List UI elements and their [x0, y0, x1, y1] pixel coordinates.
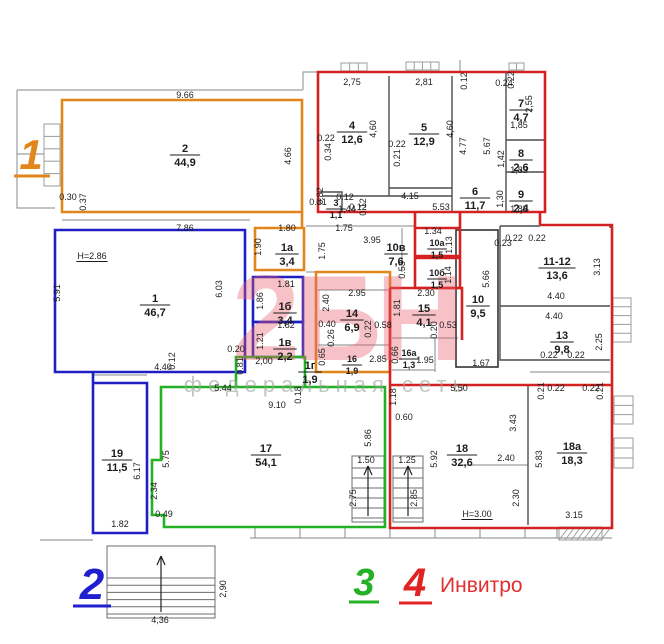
room-number: 8	[518, 148, 524, 160]
room-area: 18,3	[561, 455, 582, 467]
dimension-label: 6.17	[132, 462, 142, 480]
dimension-label: 5.67	[482, 137, 492, 155]
dimension-label: 1.75	[317, 242, 327, 260]
wall	[303, 72, 318, 90]
dimension-label: 1.80	[278, 223, 296, 233]
dimension-label: 2.30	[511, 489, 521, 507]
legend-company-name: Инвитро	[440, 574, 523, 597]
dimension-label: 0.21	[536, 382, 546, 400]
dimension-label: 1,42	[496, 150, 506, 168]
dimension-label: 0.65	[317, 348, 327, 366]
dimension-label: 1,85	[510, 120, 528, 130]
dimension-label: 4,60	[445, 120, 455, 138]
dimension-label: 4.40	[545, 311, 563, 321]
dimension-label: H=3.00	[462, 509, 491, 519]
room-number: 11-12	[543, 256, 571, 268]
dimension-label: 0.12	[167, 352, 177, 370]
dimension-label: 0.60	[395, 412, 413, 422]
room-number: 14	[346, 308, 359, 320]
dimension-label: 2.85	[369, 354, 387, 364]
legend-number-1: 1	[19, 131, 42, 178]
legend-number-2: 2	[79, 560, 105, 609]
dimension-label: 1.25	[398, 455, 416, 465]
legend-number-3: 3	[353, 562, 374, 604]
dimension-label: 0.21	[392, 149, 402, 167]
dimension-label: 1.95	[416, 355, 434, 365]
dimension-label: 4.66	[283, 147, 293, 165]
dimension-label: 1.86	[255, 292, 265, 310]
dimension-label: 0.22	[505, 233, 523, 243]
window-icon	[614, 438, 633, 468]
room-number: 1б	[279, 301, 292, 313]
dimension-label: 1.18	[388, 388, 398, 406]
dimension-label: 0.82	[315, 187, 325, 205]
room-area: 12,6	[341, 134, 362, 146]
dimension-label: 2.40	[497, 453, 515, 463]
dimension-label: 4.77	[458, 137, 468, 155]
room-number: 18	[456, 443, 468, 455]
dimension-label: 1.67	[472, 358, 490, 368]
room-area: 1,9	[346, 366, 359, 376]
dimension-label: 0.22	[506, 71, 516, 89]
dimension-label: 2.40	[321, 294, 331, 312]
dimension-label: 3.15	[565, 510, 583, 520]
dimension-label: 2,81	[415, 77, 433, 87]
dimension-label: 1.82	[277, 320, 295, 330]
room-number: 1	[152, 293, 158, 305]
room-number: 5	[421, 122, 427, 134]
unit-1-boundary	[62, 100, 302, 212]
room-number: 10	[472, 294, 484, 306]
dimension-label: 0.20	[429, 321, 439, 339]
dimension-label: 2.34	[149, 482, 159, 500]
dimension-label: H=2.86	[77, 251, 106, 261]
dimension-label: 0.53	[439, 320, 457, 330]
floor-plan: 2БНфедеральная сеть244,9146,71911,51754,…	[0, 0, 664, 644]
dimension-label: 1.82	[111, 519, 129, 529]
dimension-label: 0.40	[318, 319, 336, 329]
dimension-label: 0.12	[459, 72, 469, 90]
dimension-label: 5.66	[481, 270, 491, 288]
dimension-label: 2.95	[348, 288, 366, 298]
window-icon	[341, 63, 367, 71]
dimension-label: 2.30	[417, 288, 435, 298]
dimension-label: 2.25	[594, 333, 604, 351]
dimension-label: 1.81	[277, 279, 295, 289]
dimension-label: 0.22	[363, 320, 373, 338]
room-number: 2	[182, 143, 188, 155]
dimension-label: 2,55	[524, 95, 534, 113]
room-number: 6	[472, 186, 478, 198]
dimension-label: 1,85	[510, 204, 528, 214]
room-number: 16	[347, 354, 357, 364]
dimension-label: 0.34	[323, 143, 333, 161]
dimension-label: 4.40	[547, 291, 565, 301]
room-area: 46,7	[144, 307, 165, 319]
room-area: 12,9	[413, 136, 434, 148]
dimension-label: 0.66	[390, 346, 400, 364]
dimension-label: 3.95	[363, 235, 381, 245]
dimension-label: 2,75	[343, 77, 361, 87]
dimension-label: 1.90	[253, 238, 263, 256]
room-area: 6,9	[344, 322, 359, 334]
room-area: 13,6	[546, 270, 567, 282]
dimension-label: 5.91	[52, 284, 62, 302]
window-icon	[613, 298, 631, 342]
dimension-label: 0.22	[388, 139, 406, 149]
dimension-label: 0.26	[326, 329, 336, 347]
dimension-label: 1.14	[443, 266, 453, 284]
dimension-label: 7.86	[176, 223, 194, 233]
dimension-label: 0.30	[59, 192, 77, 202]
dimension-label: 1.75	[335, 223, 353, 233]
dimension-label: 0.18	[293, 386, 303, 404]
wall	[255, 528, 557, 538]
dimension-label: 4,60	[368, 120, 378, 138]
room-number: 19	[111, 448, 123, 460]
dimension-label: 2.85	[409, 489, 419, 507]
dimension-label: 0.58	[374, 320, 392, 330]
dimension-label: 1.21	[255, 332, 265, 350]
dimension-label: 1,30	[495, 190, 505, 208]
dimension-label: 0.21	[595, 382, 605, 400]
room-number: 18а	[563, 441, 582, 453]
dimension-label: 5.53	[432, 202, 450, 212]
dimension-label: 9.66	[176, 90, 194, 100]
dimension-label: 6.03	[214, 280, 224, 298]
dimension-label: 5.83	[534, 450, 544, 468]
dimension-label: 5.92	[429, 450, 439, 468]
room-number: 1в	[279, 337, 292, 349]
room-number: 9	[518, 189, 524, 201]
dimension-label: 0.22	[567, 350, 585, 360]
room-number: 4	[349, 120, 356, 132]
room-area: 32,6	[451, 457, 472, 469]
dimension-label: 2,00	[255, 356, 273, 366]
dimension-label: 5.44	[214, 383, 232, 393]
dimension-label: 0.81	[235, 357, 245, 375]
room-number: 15	[418, 303, 430, 315]
dimension-label: 0.20	[227, 344, 245, 354]
dimension-label: 0.22	[528, 233, 546, 243]
dimension-label: 1.34	[424, 226, 442, 236]
room-number: 10в	[387, 242, 406, 254]
room-number: 17	[260, 443, 272, 455]
dimension-label: 1.50	[357, 455, 375, 465]
room-area: 2,2	[277, 351, 292, 363]
dimension-label: 1,83	[510, 165, 528, 175]
room-number: 1г	[305, 360, 316, 372]
dimension-label: 0.49	[155, 509, 173, 519]
dimension-label: 9.10	[268, 400, 286, 410]
dimension-label: 0.12	[336, 192, 354, 202]
room-number: 16а	[401, 348, 417, 358]
dimension-label: 0.12	[358, 198, 368, 216]
room-area: 11,7	[465, 200, 486, 212]
dimension-label: 0.22	[547, 383, 565, 393]
dimension-label: 4,36	[151, 615, 169, 625]
dimension-label: 0.22	[317, 133, 335, 143]
room-area: 9,5	[470, 308, 485, 320]
dimension-label: 2.75	[348, 489, 358, 507]
room-area: 54,1	[255, 457, 276, 469]
window-icon	[614, 396, 633, 424]
room-area: 1,9	[302, 374, 317, 386]
dimension-label: 3.13	[592, 258, 602, 276]
dimension-label: 5.86	[363, 429, 373, 447]
dimension-label: 0.22	[540, 350, 558, 360]
legend-number-4: 4	[403, 561, 426, 605]
dimension-label: 5.75	[161, 450, 171, 468]
room-area: 3,4	[279, 256, 295, 268]
dimension-label: 5.50	[450, 383, 468, 393]
dimension-label: 0.53	[397, 261, 407, 279]
dimension-label: 4.15	[401, 191, 419, 201]
room-area: 11,5	[107, 462, 128, 474]
dimension-label: 1.13	[444, 236, 454, 254]
dimension-label: 2,90	[218, 580, 228, 598]
room-number: 13	[556, 330, 568, 342]
dimension-label: 3.43	[508, 414, 518, 432]
floor-plan-page: 2БНфедеральная сеть244,9146,71911,51754,…	[0, 0, 664, 644]
dimension-label: 0.37	[78, 193, 88, 211]
room-number: 1а	[281, 242, 294, 254]
room-area: 1,3	[403, 360, 416, 370]
dimension-label: 1.81	[392, 299, 402, 317]
room-area: 44,9	[174, 157, 195, 169]
room-area: 1,5	[431, 250, 444, 260]
